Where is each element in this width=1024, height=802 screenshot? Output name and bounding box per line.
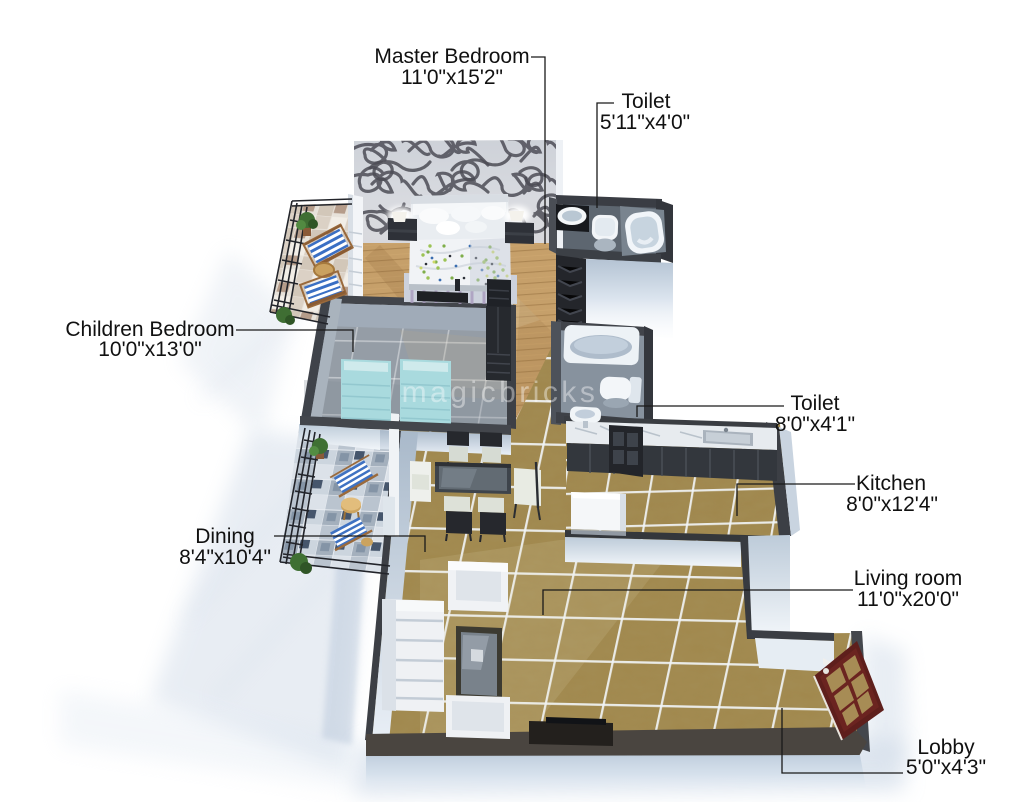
svg-text:Living room: Living room <box>854 567 963 590</box>
svg-text:Dining: Dining <box>195 525 255 548</box>
svg-text:11'0"x20'0": 11'0"x20'0" <box>857 588 959 611</box>
svg-text:11'0"x15'2": 11'0"x15'2" <box>401 66 503 89</box>
svg-text:Toilet: Toilet <box>790 392 839 415</box>
svg-text:Toilet: Toilet <box>621 90 670 113</box>
svg-text:5'0"x4'3": 5'0"x4'3" <box>906 756 986 779</box>
svg-text:8'0"x12'4": 8'0"x12'4" <box>846 493 938 516</box>
svg-text:Master Bedroom: Master Bedroom <box>374 45 529 68</box>
svg-text:magicbricks: magicbricks <box>402 376 599 409</box>
svg-text:8'4"x10'4": 8'4"x10'4" <box>179 546 271 569</box>
svg-text:Kitchen: Kitchen <box>856 472 926 495</box>
svg-text:8'0"x4'1": 8'0"x4'1" <box>775 413 855 436</box>
svg-text:5'11"x4'0": 5'11"x4'0" <box>600 111 690 134</box>
svg-text:10'0"x13'0": 10'0"x13'0" <box>98 338 202 361</box>
